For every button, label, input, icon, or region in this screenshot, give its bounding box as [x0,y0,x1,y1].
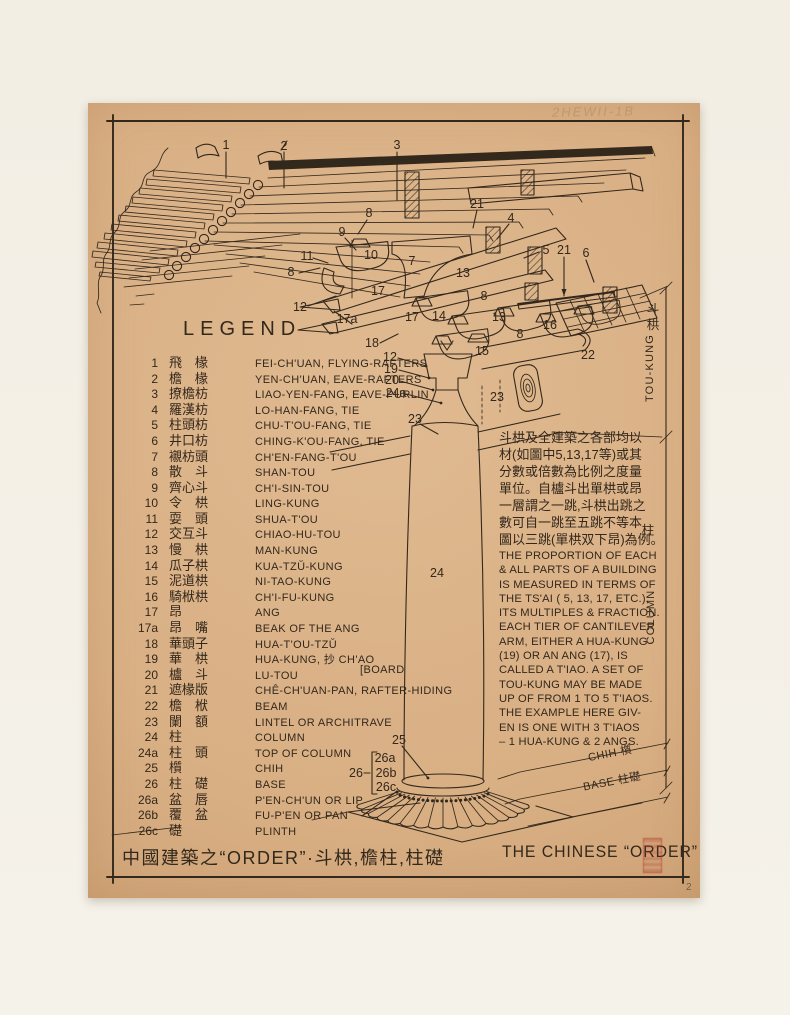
chinese-note-line: 數可自一跳至五跳不等本 [499,514,659,531]
scanned-plate: LEGEND 1飛 椽FEI-CH'UAN, FLYING-RAFTERS2檐 … [0,0,790,1015]
legend-item-chinese: 礎 [169,820,255,839]
legend-item: 11耍 頭SHUA-T'OU [114,508,318,524]
diagram-callout-15: 15 [475,344,489,358]
chinese-note-line: 斗栱及全建築之各部均以 [499,429,659,446]
diagram-callout-8: 8 [288,265,295,279]
pencil-inscription: 2HEWII-1B [552,103,635,119]
english-note-line: CALLED A T'IAO. A SET OF [499,663,661,677]
english-note-line: TOU-KUNG MAY BE MADE [499,678,661,692]
english-note-line: THE PROPORTION OF EACH [499,549,661,563]
diagram-callout-16: 16 [543,318,557,332]
legend-item: 22檐 栿BEAM [114,695,288,711]
legend-item: 12交互斗CHIAO-HU-TOU [114,523,341,539]
artist-seal [643,838,662,873]
diagram-callout-23: 23 [408,412,422,426]
legend-item: 19華 栱HUA-KUNG, 抄 CH'AO [114,648,375,664]
chinese-note-line: 單位。自櫨斗出單栱或昂 [499,480,659,497]
legend-item: 14瓜子栱KUA-TZŬ-KUNG [114,555,343,571]
diagram-callout-6: 6 [583,246,590,260]
diagram-callout-12: 12 [293,300,307,314]
diagram-callout-13: 13 [492,310,506,324]
english-note-line: ARM, EITHER A HUA-KUNG [499,635,661,649]
legend-item: 6井口枋CHING-K'OU-FANG, TIE [114,430,385,446]
title-chinese: 中國建築之“ORDER”·斗栱,檐柱,柱礎 [122,844,445,870]
diagram-callout-21: 21 [470,197,484,211]
legend-item: 25櫍CHIH [114,757,284,773]
legend-item: 4羅漢枋LO-HAN-FANG, TIE [114,399,360,415]
legend-item-note: [BOARD [360,664,405,676]
english-note-line: EACH TIER OF CANTILEVER [499,620,661,634]
diagram-callout-22: 22 [581,348,595,362]
chinese-note-line: 分數或倍數為比例之度量 [499,463,659,480]
legend-item: 15泥道栱NI-TAO-KUNG [114,570,331,586]
legend-item: 20櫨 斗LU-TOU[BOARD [114,664,298,680]
diagram-callout-14: 14 [432,309,446,323]
english-note-line: ITS MULTIPLES & FRACTION. [499,606,661,620]
english-note-line: THE EXAMPLE HERE GIV- [499,706,661,720]
legend-item: 24柱COLUMN [114,726,305,742]
legend-item: 9齊心斗CH'I-SIN-TOU [114,477,330,493]
legend-item: 26柱 礎BASE [114,773,286,789]
diagram-callout-17: 17 [405,310,419,324]
english-note-line: THE TS'AI ( 5, 13, 17, ETC.), [499,592,661,606]
english-note-line: UP OF FROM 1 TO 5 T'IAOS. [499,692,661,706]
toukung-cjk-label: 斗栱 [643,303,662,334]
diagram-callout-26: 26 [349,766,363,780]
diagram-callout-7: 7 [409,254,416,268]
legend-item: 10令 栱LING-KUNG [114,492,320,508]
legend-item: 3撩檐枋LIAO-YEN-FANG, EAVE-PURLIN [114,383,429,399]
legend-item-number: 26c [114,824,158,838]
diagram-callout-25: 25 [392,733,406,747]
diagram-callout-17: 17 [371,284,385,298]
title-english: THE CHINESE “ORDER” [502,842,698,862]
diagram-callout-8: 8 [366,206,373,220]
column-cjk-label: 柱 [638,523,657,539]
diagram-callout-17a: 17a [337,312,358,326]
legend-item: 21遮椽版CHÊ-CH'UAN-PAN, RAFTER-HIDING [114,679,452,695]
english-note-block: THE PROPORTION OF EACH& ALL PARTS OF A B… [499,549,661,749]
chinese-note-line: 材(如圖中5,13,17等)或其 [499,446,659,463]
legend-item: 17a昂 嘴BEAK OF THE ANG [114,617,360,633]
diagram-callout-26b: 26b [376,766,397,780]
diagram-callout-3: 3 [394,138,401,152]
page-number-mark: 2 [686,882,692,893]
chinese-note-block: 斗栱及全建築之各部均以材(如圖中5,13,17等)或其分數或倍數為比例之度量單位… [499,429,659,548]
diagram-callout-9: 9 [339,225,346,239]
legend-item: 23闌 額LINTEL OR ARCHITRAVE [114,711,392,727]
legend-item: 16騎栿栱CH'I-FU-KUNG [114,586,335,602]
diagram-callout-20: 20 [385,373,399,387]
diagram-callout-18: 18 [365,336,379,350]
diagram-callout-21: 21 [557,243,571,257]
chinese-note-line: 一層謂之一跳,斗栱出跳之 [499,497,659,514]
legend-item: 7襯枋頭CH'EN-FANG-T'OU [114,446,357,462]
legend-item: 26c礎PLINTH [114,820,297,836]
legend-item: 24a柱 頭TOP OF COLUMN [114,742,351,758]
english-note-line: (19) OR AN ANG (17), IS [499,649,661,663]
legend-item: 18華頭子HUA-T'OU-TZŬ [114,633,337,649]
legend-item: 5柱頭枋CHU-T'OU-FANG, TIE [114,414,372,430]
legend-header: LEGEND [183,318,301,341]
diagram-callout-5: 5 [543,243,550,257]
diagram-callout-24a: 24a [386,386,407,400]
english-note-line: IS MEASURED IN TERMS OF [499,578,661,592]
diagram-callout-8: 8 [481,289,488,303]
legend-item-english: PLINTH [255,826,297,838]
column-label: COLUMN [645,590,657,645]
diagram-callout-24: 24 [430,566,444,580]
diagram-callout-26a: 26a [375,751,396,765]
legend-item: 8散 斗SHAN-TOU [114,461,315,477]
diagram-callout-23: 23 [490,390,504,404]
diagram-callout-2: 2 [281,139,288,153]
legend-item: 26a盆 唇P'EN-CH'UN OR LIP [114,789,363,805]
legend-item: 13慢 栱MAN-KUNG [114,539,318,555]
diagram-callout-26c: 26c [376,780,396,794]
diagram-callout-13: 13 [456,266,470,280]
toukung-label: TOU-KUNG [644,334,656,402]
diagram-callout-8: 8 [517,327,524,341]
chinese-note-line: 圖以三跳(單栱双下昂)為例。 [499,531,659,548]
english-note-line: EN IS ONE WITH 3 T'IAOS [499,721,661,735]
diagram-callout-1: 1 [223,138,230,152]
english-note-line: & ALL PARTS OF A BUILDING [499,563,661,577]
legend-item: 17昂ANG [114,601,280,617]
diagram-callout-10: 10 [364,248,378,262]
legend-item: 26b覆 盆FU-P'EN OR PAN [114,804,348,820]
diagram-callout-11: 11 [301,249,314,263]
legend-item: 2檐 椽YEN-CH'UAN, EAVE-RAFTERS [114,368,422,384]
english-note-line: – 1 HUA-KUNG & 2 ANGS. [499,735,661,749]
legend-item: 1飛 椽FEI-CH'UAN, FLYING-RAFTERS [114,352,427,368]
diagram-callout-4: 4 [508,211,515,225]
column-outline [404,423,484,781]
